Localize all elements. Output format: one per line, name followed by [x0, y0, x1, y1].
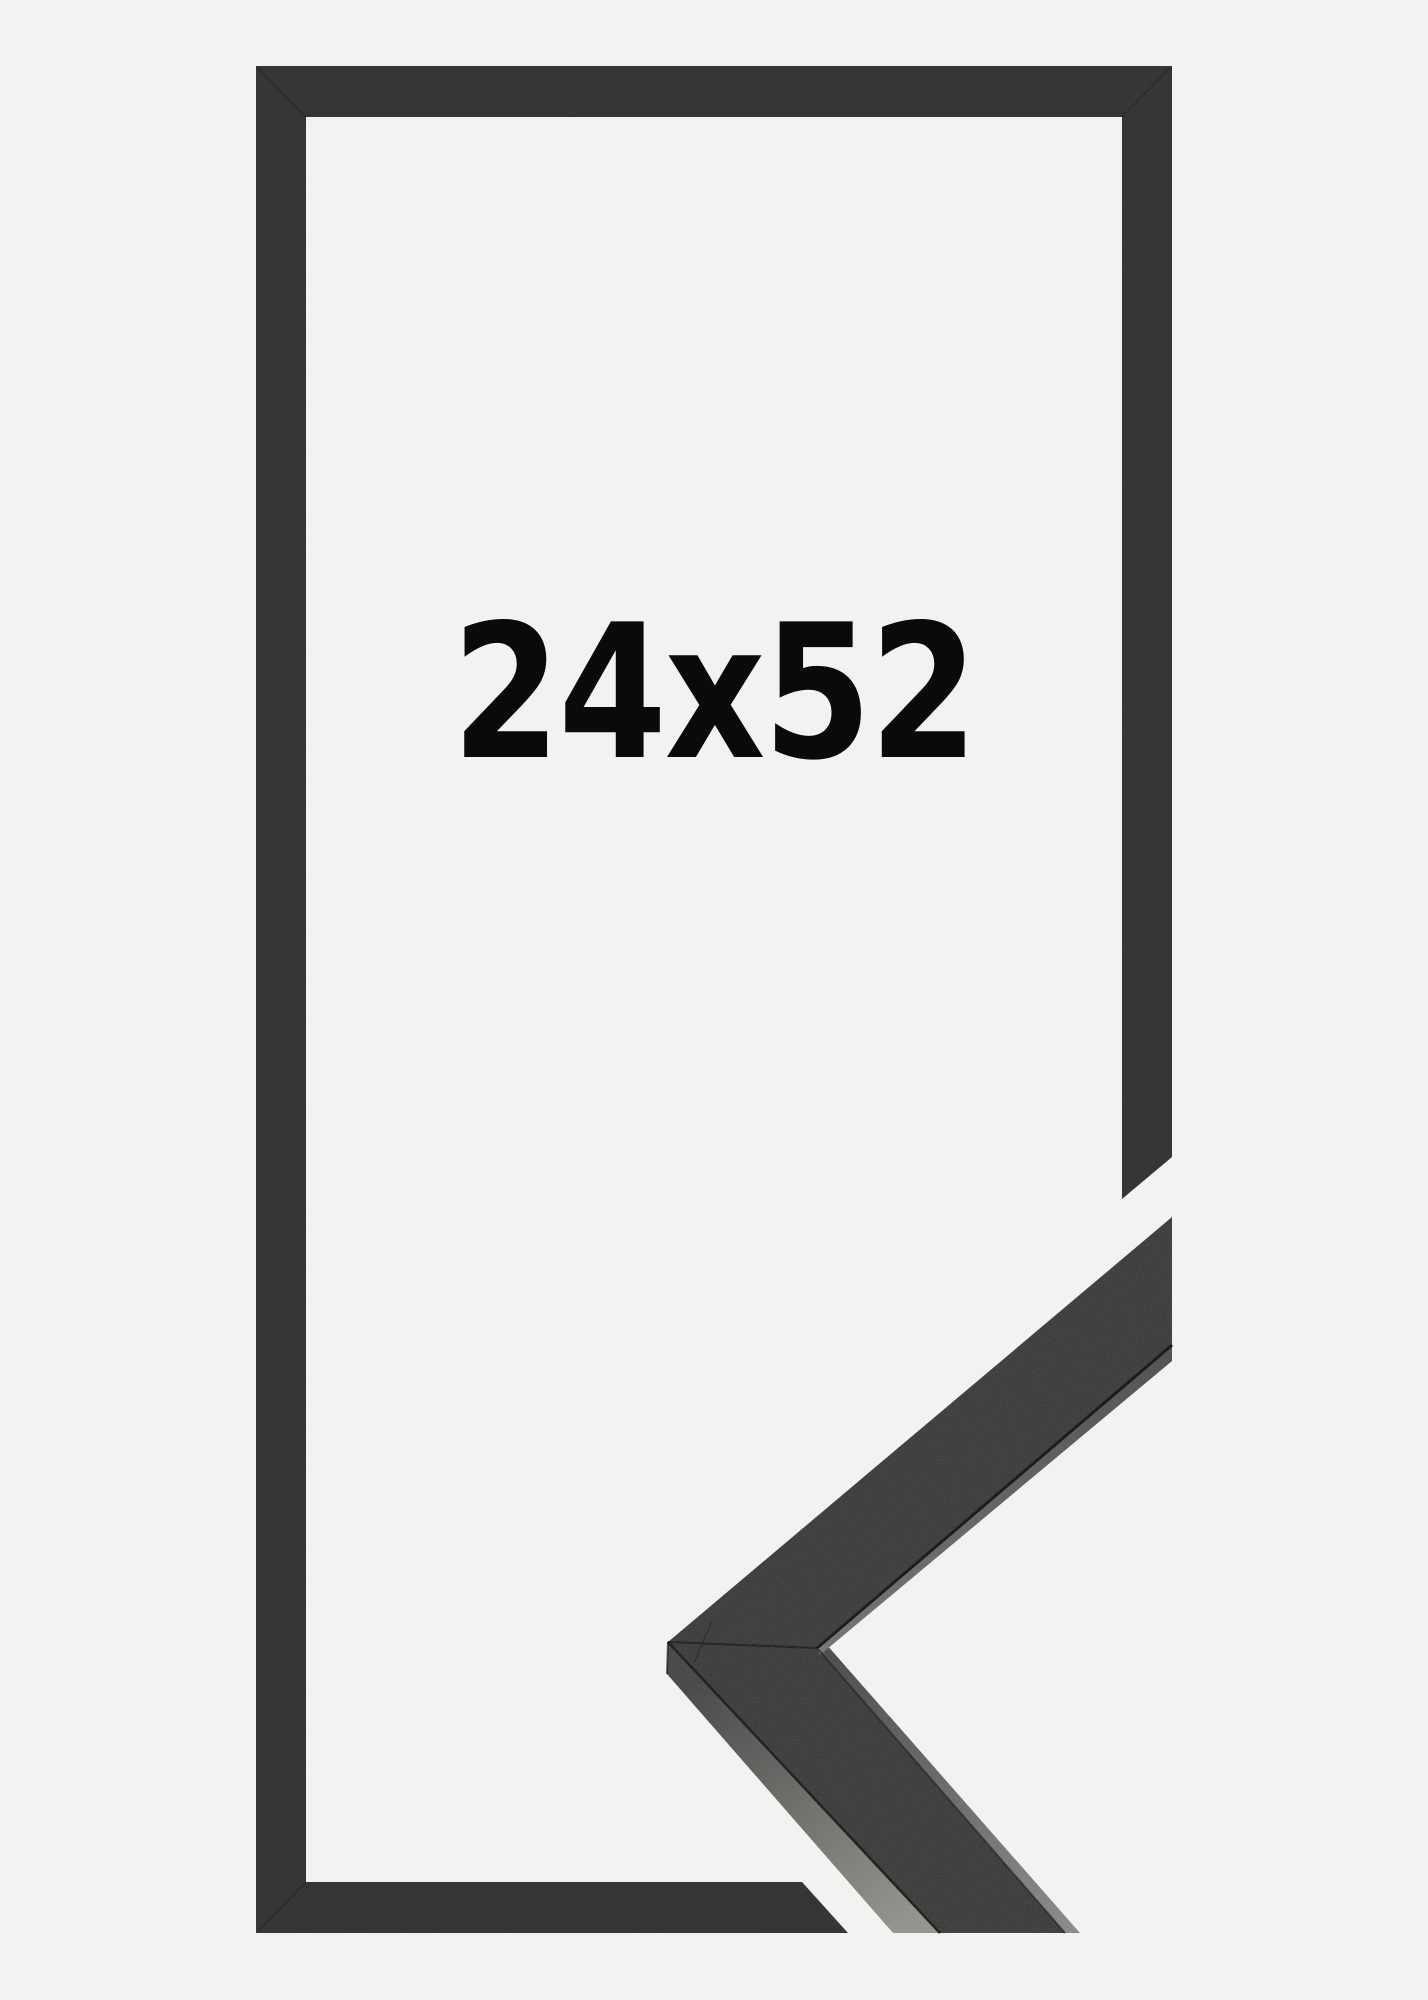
product-size-illustration: 24x52 — [0, 0, 1428, 2000]
molding-corner-detail — [600, 1180, 1190, 1950]
frame-graphic — [0, 0, 1428, 2000]
molding-texture — [600, 1180, 1190, 1950]
